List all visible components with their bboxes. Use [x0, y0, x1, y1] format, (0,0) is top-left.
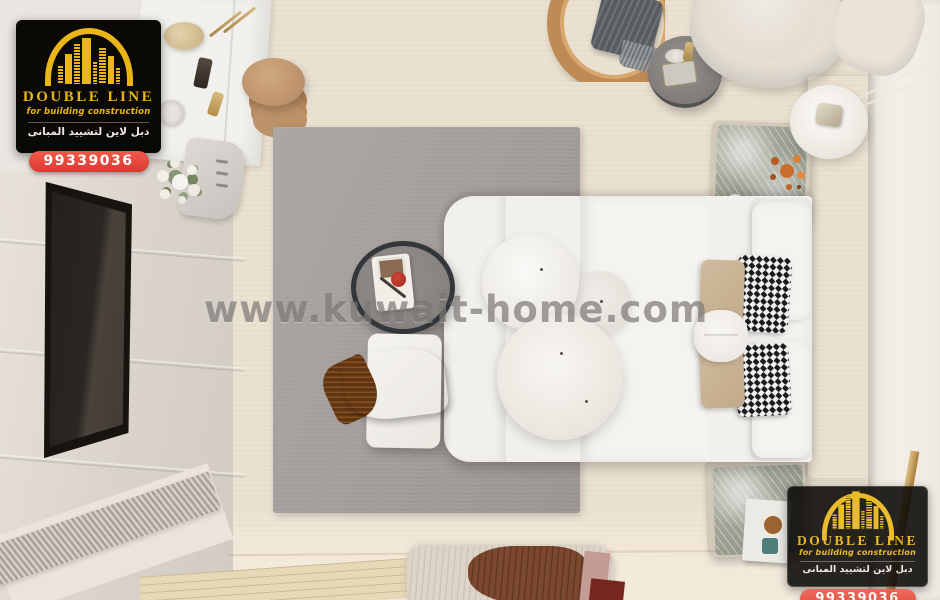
brand-tagline: for building construction: [16, 106, 161, 118]
brand-tagline-arabic: دبل لاين لتشييد المبانى: [16, 126, 161, 139]
bedroom-render: www.kuwait-home.com DOUBLE LINE for buil…: [0, 0, 940, 600]
red-trinket-box: [391, 272, 406, 287]
leaning-mirror: [44, 179, 132, 461]
building-bar: [861, 511, 864, 529]
tan-floor-pouf: [242, 58, 305, 106]
building-bar: [116, 68, 120, 84]
building-bar: [99, 48, 106, 84]
lamp-brass-hub: [815, 102, 844, 127]
wavy-rug-brown-area: [468, 546, 586, 600]
logo-box: DOUBLE LINE for building construction دب…: [16, 20, 161, 153]
building-bar: [82, 38, 91, 84]
decor-table-tray: [662, 60, 698, 87]
brand-tagline-arabic: دبل لاين لتشييد المبانى: [788, 564, 927, 576]
magazine-photo: [762, 538, 778, 554]
skyline-icon: [829, 491, 886, 529]
phone-badge: 99339036: [29, 151, 149, 172]
pendant-lamp-large: [497, 314, 623, 440]
gold-decor-tray: [164, 22, 204, 50]
logo-divider: [28, 122, 149, 123]
lamp-cable-dot: [540, 268, 543, 271]
building-bar: [65, 54, 72, 84]
building-bar: [93, 62, 97, 84]
phone-badge: 99339036: [800, 589, 916, 600]
logo-divider: [800, 561, 915, 562]
lamp-cable-dot: [585, 400, 588, 403]
building-bar: [74, 44, 80, 84]
building-bar: [838, 504, 844, 529]
building-bar: [832, 514, 836, 529]
magazine-photo: [764, 516, 782, 534]
wavy-rug-maroon-stripe: [589, 578, 625, 600]
mirror-glass: [44, 179, 132, 461]
skyline-icon: [54, 38, 124, 84]
company-logo-top-left: DOUBLE LINE for building construction دب…: [16, 20, 161, 172]
round-plate: [158, 100, 184, 126]
double-line-emblem-icon: [820, 493, 895, 531]
building-bar: [880, 516, 883, 529]
building-bar: [845, 496, 850, 529]
double-line-emblem-icon: [43, 28, 135, 86]
brand-tagline: for building construction: [788, 548, 927, 558]
building-bar: [852, 491, 859, 529]
building-bar: [873, 506, 878, 529]
building-bar: [58, 66, 63, 84]
lamp-cable-dot: [560, 352, 563, 355]
site-watermark: www.kuwait-home.com: [204, 288, 708, 331]
building-bar: [866, 500, 872, 530]
logo-box: DOUBLE LINE for building construction دب…: [787, 486, 928, 587]
company-logo-bottom-right: DOUBLE LINE for building construction دب…: [787, 486, 928, 600]
building-bar: [108, 56, 114, 84]
brand-name: DOUBLE LINE: [16, 89, 161, 106]
